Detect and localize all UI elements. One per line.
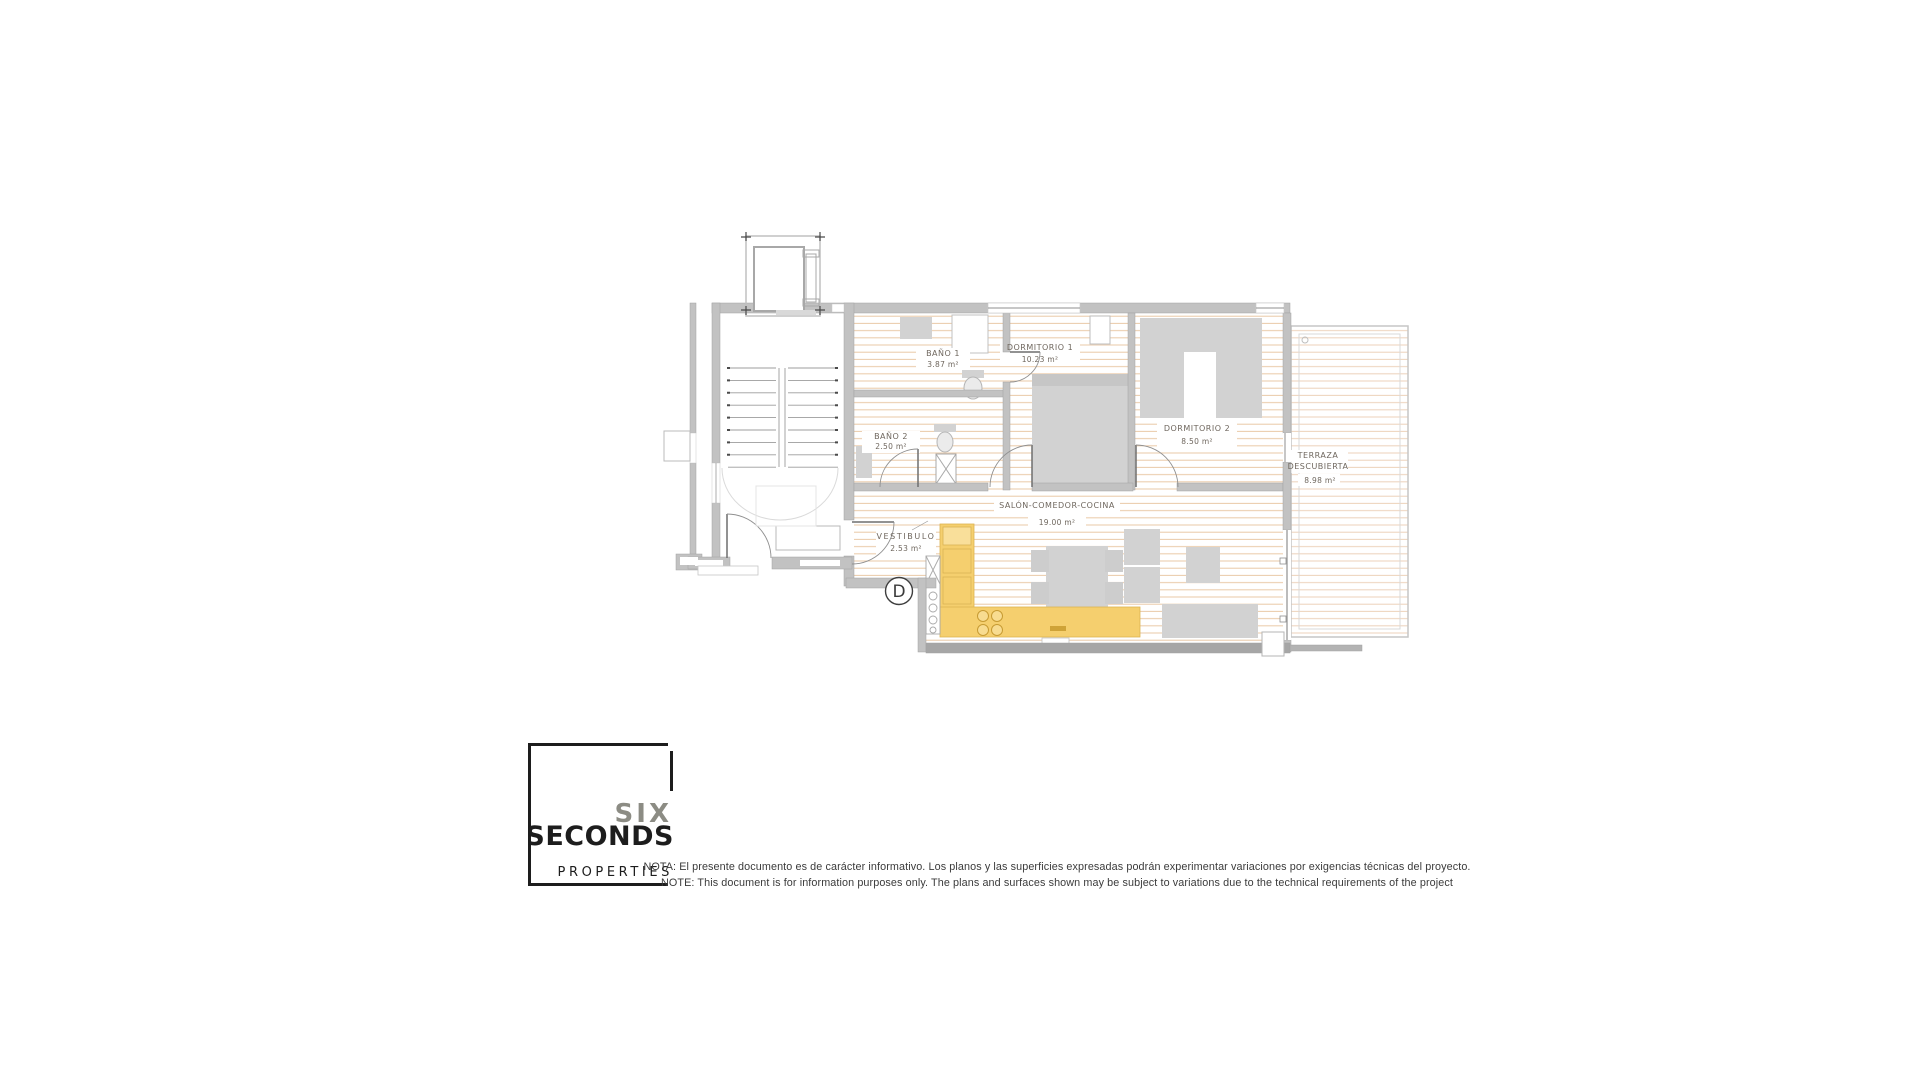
bed2-gap (1184, 352, 1216, 418)
stair-landing-arc (722, 468, 838, 520)
wall-left-outer (690, 303, 696, 433)
salon-area: 19.00 m² (1039, 518, 1076, 527)
terraza-area: 8.98 m² (1304, 476, 1336, 485)
wall-right (1283, 462, 1291, 530)
unit-letter: D (892, 582, 905, 602)
chair-icon (1105, 550, 1123, 572)
disclaimer-en: NOTE: This document is for information p… (607, 876, 1507, 892)
lobby-bench (776, 526, 840, 550)
toilet2-icon (937, 432, 953, 452)
entry-jamb (800, 560, 840, 566)
terrace-door-opening (1283, 433, 1291, 462)
dining-table-icon (1046, 546, 1108, 608)
door-handle-icon (1280, 558, 1286, 564)
vestibulo-label: VESTIBULO (876, 532, 935, 541)
floor-plan: BAÑO 1 3.87 m² DORMITORIO 1 10.23 m² DOR… (0, 0, 1920, 1080)
bano1-label: BAÑO 1 (926, 348, 960, 358)
toilet2-tank (934, 424, 956, 432)
salon-label: SALÓN-COMEDOR-COCINA (999, 499, 1115, 510)
armchair-icon (1124, 567, 1160, 603)
wall-right (1283, 313, 1291, 433)
entry-jamb (695, 560, 723, 566)
dormitorio2-area: 8.50 m² (1181, 437, 1213, 446)
page: BAÑO 1 3.87 m² DORMITORIO 1 10.23 m² DOR… (0, 0, 1920, 1080)
window-outer (690, 433, 696, 463)
staircase (722, 368, 840, 550)
vanity1-icon (900, 317, 932, 339)
wall-salon-left (918, 578, 926, 652)
wall-apartment-left (844, 303, 854, 520)
bed1-icon (1032, 374, 1132, 484)
oven-handle-icon (1050, 626, 1066, 631)
chair-icon (1105, 582, 1123, 604)
appliance-column-icon (926, 556, 940, 634)
wall-dorm1-dorm2 (1128, 313, 1135, 490)
dormitorio2-label: DORMITORIO 2 (1164, 424, 1230, 433)
stair-tick-marks (835, 368, 838, 455)
kitchen-counter-horizontal (940, 607, 1140, 637)
wall-bano1-dorm1 (1003, 382, 1010, 490)
wall-bottom (926, 643, 1290, 653)
wall-bedrooms-salon (854, 483, 988, 491)
disclaimer: NOTA: El presente documento es de caráct… (607, 860, 1507, 891)
terraza-label-2: DESCUBIERTA (1288, 462, 1349, 471)
wall-left-outer (690, 463, 696, 560)
stub-inset (680, 557, 698, 565)
bed1-headboard (1032, 374, 1132, 386)
wall-bedrooms-salon (1032, 483, 1133, 491)
wall-banos-divider (854, 390, 1008, 397)
kitchen-module (943, 527, 971, 545)
side-table-icon (1186, 547, 1220, 583)
nightstand-icon (1090, 316, 1110, 344)
chair-icon (1031, 582, 1049, 604)
exterior-step (698, 566, 758, 575)
sofa-icon (1162, 604, 1258, 638)
elevator-sill (776, 310, 816, 315)
wall-stair-left (712, 303, 720, 463)
bano2-label: BAÑO 2 (874, 431, 908, 441)
door-arc (727, 514, 771, 558)
bano2-area: 2.50 m² (875, 442, 907, 451)
elevator-door-rail (806, 254, 816, 302)
washer-column-icon (936, 454, 956, 484)
dormitorio1-label: DORMITORIO 1 (1007, 343, 1073, 352)
wall-bedrooms-salon (1177, 483, 1283, 491)
bano1-area: 3.87 m² (927, 360, 959, 369)
terraza-label-1: TERRAZA (1297, 451, 1339, 460)
dormitorio1-area: 10.23 m² (1022, 355, 1059, 364)
wall-stair-left (712, 503, 720, 560)
chair-icon (1031, 550, 1049, 572)
elevator-cab (754, 247, 804, 311)
logo-word-seconds: SECONDS (528, 821, 674, 852)
armchair-icon (1124, 529, 1160, 565)
window-jamb (832, 304, 844, 312)
disclaimer-es: NOTA: El presente documento es de caráct… (607, 860, 1507, 876)
ledge-box (664, 431, 690, 461)
vestibulo-area: 2.53 m² (890, 544, 922, 553)
stair-treads-left (728, 368, 776, 467)
corner-pillar (1262, 632, 1284, 656)
unit-badge: D (886, 578, 913, 605)
shower1-icon (952, 315, 988, 353)
terrace-bottom-strip (1290, 645, 1362, 651)
stair-tick-marks (727, 368, 730, 455)
stair-treads-right (788, 368, 838, 467)
door-handle-icon (1280, 616, 1286, 622)
